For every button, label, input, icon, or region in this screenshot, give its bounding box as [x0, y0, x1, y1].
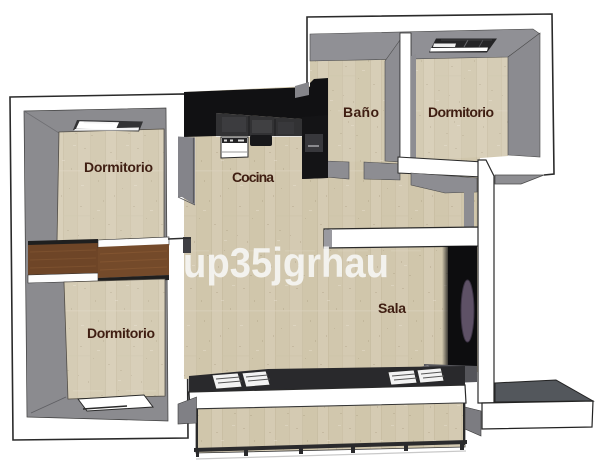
svg-text:Dormitorio: Dormitorio	[87, 325, 155, 341]
svg-text:Cocina: Cocina	[232, 169, 274, 185]
svg-text:Dormitorio: Dormitorio	[428, 104, 494, 120]
svg-text:up35jgrhau: up35jgrhau	[183, 239, 389, 286]
svg-text:Sala: Sala	[378, 300, 406, 316]
svg-text:Baño: Baño	[343, 104, 379, 120]
svg-text:Dormitorio: Dormitorio	[84, 159, 153, 175]
